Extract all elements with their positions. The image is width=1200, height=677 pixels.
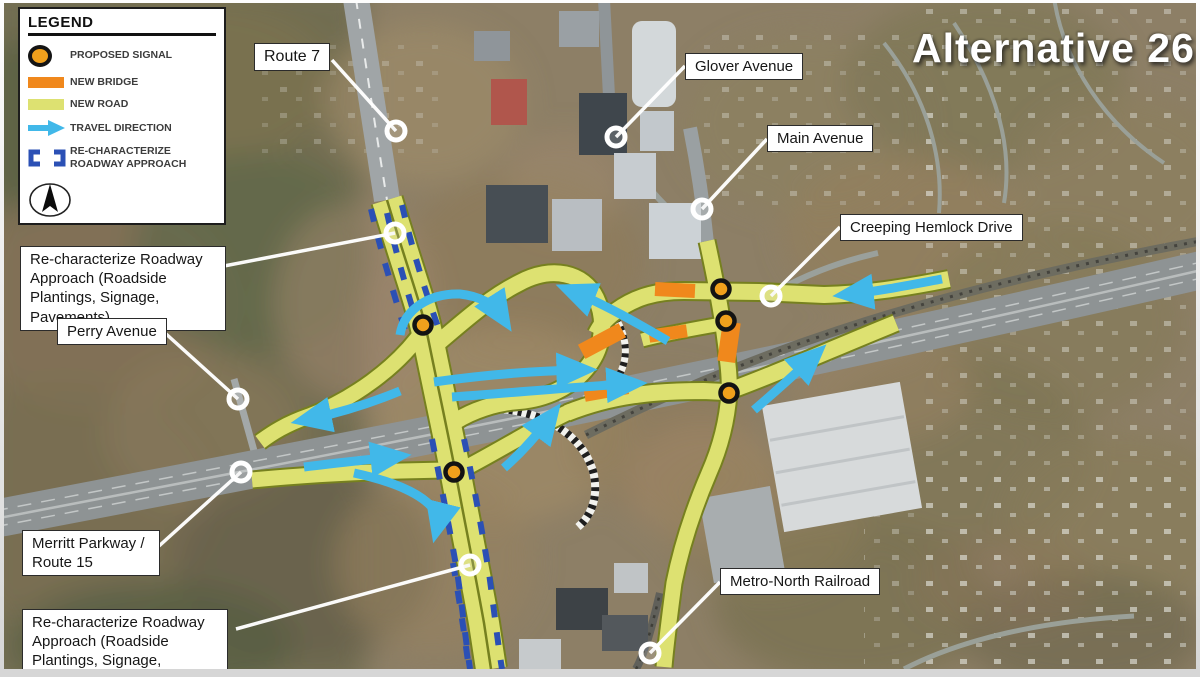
legend-item-label: NEW ROAD [70,98,128,111]
new-road-icon [28,99,70,110]
callout-perry-avenue: Perry Avenue [57,318,167,345]
legend-item-travel-direction: TRAVEL DIRECTION [28,120,216,136]
legend: LEGEND PROPOSED SIGNAL NEW BRIDGE NEW RO… [18,7,226,225]
legend-title: LEGEND [28,14,216,36]
proposed-signal-icon [28,45,70,67]
legend-item-label: NEW BRIDGE [70,76,138,89]
legend-item-proposed-signal: PROPOSED SIGNAL [28,45,216,67]
north-arrow-icon [28,181,74,219]
proposed-signal-marker [721,385,738,402]
aerial-map: Route 7 Glover Avenue Main Avenue Creepi… [4,3,1196,669]
callout-glover-avenue: Glover Avenue [685,53,803,80]
callout-route-7: Route 7 [254,43,330,71]
re-characterize-icon [28,149,70,167]
legend-item-new-bridge: NEW BRIDGE [28,76,216,89]
north-compass [28,181,216,219]
proposed-signal-marker [718,313,735,330]
callout-recharacterize-south: Re-characterize Roadway Approach (Roadsi… [22,609,228,669]
callout-main-avenue: Main Avenue [767,125,873,152]
legend-item-label: TRAVEL DIRECTION [70,122,172,135]
legend-item-re-characterize: RE-CHARACTERIZE ROADWAY APPROACH [28,145,216,171]
proposed-signal-marker [415,317,432,334]
new-bridge-icon [28,77,70,88]
callout-metro-north-railroad: Metro-North Railroad [720,568,880,595]
callout-merritt-parkway-route-15: Merritt Parkway / Route 15 [22,530,160,576]
page-title: Alternative 26 [912,25,1195,72]
proposed-signal-marker [446,464,463,481]
travel-direction-icon [28,120,70,136]
callout-creeping-hemlock-drive: Creeping Hemlock Drive [840,214,1023,241]
legend-item-label: PROPOSED SIGNAL [70,49,172,62]
legend-item-label: RE-CHARACTERIZE ROADWAY APPROACH [70,145,216,171]
slide: Route 7 Glover Avenue Main Avenue Creepi… [0,0,1200,677]
proposed-signal-marker [713,281,730,298]
legend-item-new-road: NEW ROAD [28,98,216,111]
